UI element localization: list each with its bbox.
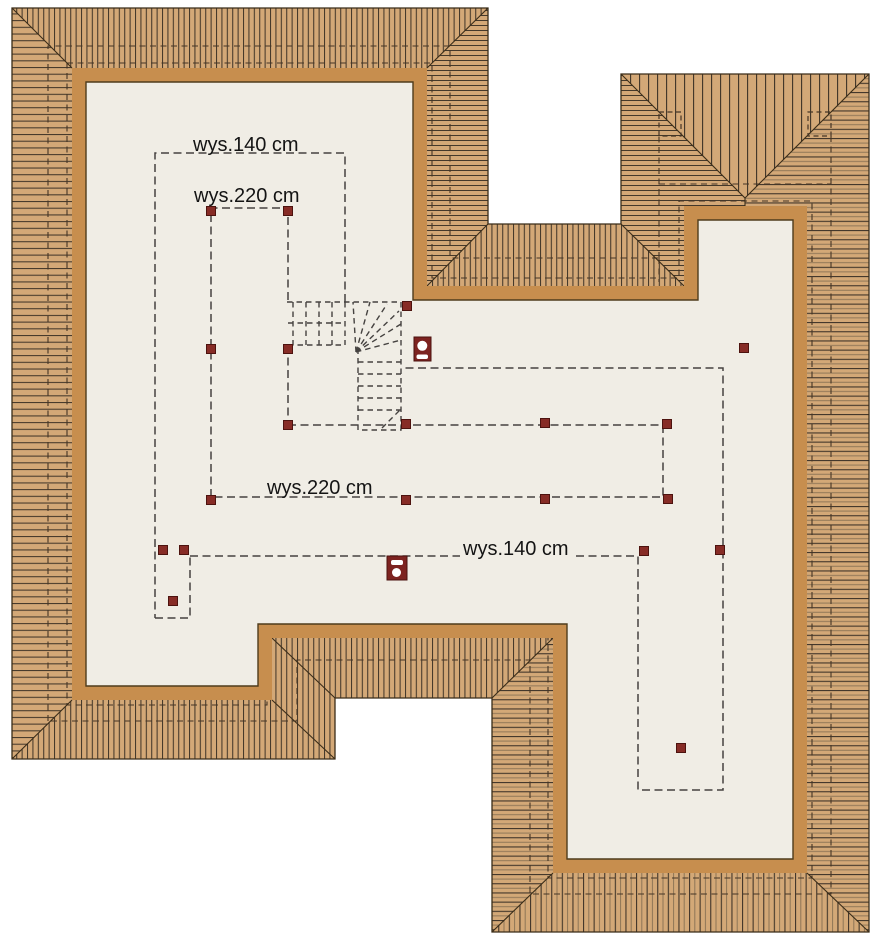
- svg-text:wys.220 cm: wys.220 cm: [193, 185, 300, 207]
- svg-text:wys.220 cm: wys.220 cm: [266, 477, 373, 499]
- svg-text:wys.140 cm: wys.140 cm: [192, 134, 299, 156]
- svg-text:wys.140 cm: wys.140 cm: [462, 538, 569, 560]
